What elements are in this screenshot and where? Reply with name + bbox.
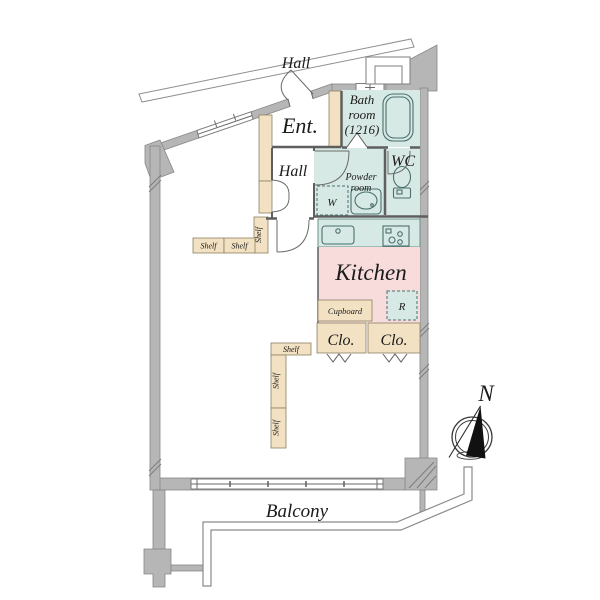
label-wc: WC — [391, 153, 415, 170]
label-shelf-4: Shelf — [283, 345, 301, 354]
label-shelf-2: Shelf — [232, 242, 250, 251]
label-fridge: R — [398, 301, 406, 313]
column — [405, 458, 437, 490]
label-hall-inner: Hall — [278, 163, 308, 180]
label-shelf-6: Shelf — [272, 418, 281, 436]
label-washer: W — [327, 197, 337, 209]
label-kitchen: Kitchen — [334, 260, 407, 285]
label-powder-1: Powder — [344, 172, 376, 183]
label-shelf-3: Shelf — [254, 225, 263, 243]
ent-pillar-left — [259, 115, 272, 181]
label-bathroom-3: (1216) — [345, 122, 380, 137]
ent-pillar-right — [329, 91, 341, 147]
label-closet-right: Clo. — [380, 332, 407, 349]
label-bathroom-1: Bath — [350, 92, 375, 107]
label-cupboard: Cupboard — [328, 306, 363, 316]
kitchen-counter — [318, 219, 420, 247]
label-bathroom-2: room — [349, 107, 376, 122]
label-entrance: Ent. — [281, 113, 318, 138]
label-powder-2: room — [351, 183, 372, 194]
hall-closet — [259, 181, 272, 213]
floor-plan: Hall Ent. Bath room (1216) Hall WC Powde… — [0, 0, 600, 600]
label-north: N — [477, 381, 495, 406]
label-shelf-1: Shelf — [201, 242, 219, 251]
label-shelf-5: Shelf — [272, 371, 281, 389]
label-closet-left: Clo. — [327, 332, 354, 349]
label-hall-top: Hall — [281, 55, 311, 72]
label-balcony: Balcony — [266, 501, 329, 522]
